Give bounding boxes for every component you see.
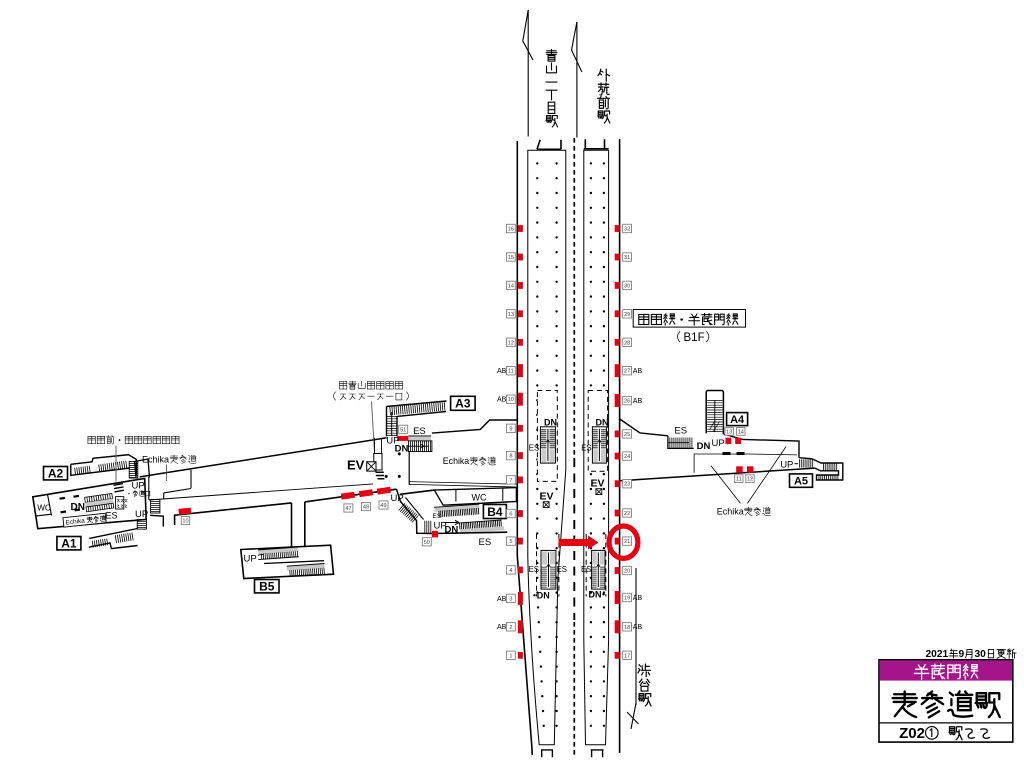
svg-text:14: 14: [738, 429, 744, 435]
svg-text:EV: EV: [591, 477, 605, 489]
svg-text:AB: AB: [633, 595, 643, 602]
svg-text:ES: ES: [557, 565, 567, 574]
svg-text:11: 11: [508, 369, 514, 375]
svg-text:2021: 2021: [926, 649, 949, 660]
svg-text:4: 4: [509, 568, 512, 574]
svg-text:10: 10: [182, 519, 188, 525]
svg-text:29: 29: [624, 312, 630, 318]
svg-text:10: 10: [508, 397, 514, 403]
svg-text:ES: ES: [529, 444, 539, 453]
svg-text:2: 2: [509, 625, 512, 631]
svg-text:UP: UP: [135, 509, 148, 520]
svg-text:AB: AB: [497, 624, 507, 631]
svg-text:WC: WC: [37, 504, 51, 513]
svg-text:19: 19: [624, 596, 630, 602]
svg-text:Echika: Echika: [142, 454, 169, 464]
svg-text:22: 22: [624, 511, 630, 517]
svg-text:UP: UP: [780, 459, 793, 470]
svg-text:EV: EV: [347, 458, 365, 473]
svg-text:DN: DN: [589, 590, 602, 600]
svg-text:5: 5: [509, 539, 512, 545]
svg-text:28: 28: [624, 340, 630, 346]
svg-text:9: 9: [959, 649, 965, 660]
svg-text:A1: A1: [61, 536, 77, 550]
svg-text:13: 13: [726, 429, 732, 435]
svg-text:51: 51: [400, 427, 406, 433]
svg-text:ES: ES: [479, 537, 492, 548]
svg-text:AB: AB: [633, 368, 643, 375]
svg-text:UP: UP: [712, 438, 725, 449]
svg-text:DN: DN: [71, 502, 85, 513]
svg-text:9: 9: [509, 426, 512, 432]
svg-text:A2: A2: [48, 466, 64, 480]
svg-text:49: 49: [380, 503, 386, 509]
svg-text:Z02: Z02: [899, 725, 925, 742]
svg-text:8: 8: [509, 454, 512, 460]
svg-text:32: 32: [624, 227, 630, 233]
svg-text:AB: AB: [497, 397, 507, 404]
svg-text:DN: DN: [596, 418, 609, 428]
svg-text:30: 30: [624, 283, 630, 289]
svg-text:7: 7: [509, 478, 512, 484]
svg-text:18: 18: [624, 625, 630, 631]
svg-text:12: 12: [747, 477, 753, 483]
svg-text:B4: B4: [487, 505, 503, 519]
svg-text:AB: AB: [633, 398, 643, 405]
svg-text:Echika: Echika: [443, 456, 470, 466]
svg-text:26: 26: [624, 399, 630, 405]
svg-text:DN: DN: [537, 591, 550, 601]
svg-text:EV: EV: [540, 490, 554, 502]
svg-text:ES: ES: [581, 444, 591, 453]
svg-text:24: 24: [624, 454, 630, 460]
svg-text:23: 23: [624, 482, 630, 488]
svg-text:ES: ES: [433, 513, 442, 520]
svg-text:27: 27: [624, 369, 630, 375]
svg-text:13: 13: [508, 312, 514, 318]
svg-text:31: 31: [624, 255, 630, 261]
svg-text:A5: A5: [794, 476, 808, 488]
svg-text:12: 12: [508, 340, 514, 346]
svg-text:15: 15: [508, 255, 514, 261]
svg-text:ES: ES: [674, 426, 687, 437]
svg-text:B5: B5: [259, 579, 275, 593]
svg-text:Echika: Echika: [717, 507, 744, 517]
svg-text:25: 25: [624, 432, 630, 438]
svg-text:AB: AB: [497, 368, 507, 375]
svg-text:UP: UP: [244, 554, 257, 565]
svg-text:ES: ES: [106, 511, 118, 521]
svg-text:20: 20: [624, 569, 630, 575]
svg-text:48: 48: [363, 505, 369, 511]
svg-text:ES: ES: [581, 565, 591, 574]
svg-text:6: 6: [509, 512, 512, 518]
svg-text:16: 16: [508, 227, 514, 233]
svg-text:47: 47: [345, 506, 351, 512]
svg-text:DN: DN: [544, 418, 557, 428]
svg-text:11: 11: [736, 477, 742, 483]
svg-text:21: 21: [624, 539, 630, 545]
svg-text:17: 17: [624, 653, 630, 659]
svg-text:50: 50: [424, 540, 430, 546]
svg-text:ES: ES: [529, 565, 539, 574]
svg-text:14: 14: [508, 283, 514, 289]
svg-text:DN: DN: [395, 444, 409, 455]
svg-text:WC: WC: [472, 493, 487, 503]
svg-text:30: 30: [974, 649, 986, 660]
svg-text:3: 3: [509, 596, 512, 602]
svg-text:AB: AB: [633, 624, 643, 631]
svg-text:A4: A4: [730, 414, 745, 426]
svg-text:B1F: B1F: [684, 332, 705, 344]
svg-text:DN: DN: [697, 441, 711, 452]
svg-text:1: 1: [509, 653, 512, 659]
svg-text:A3: A3: [455, 397, 471, 411]
svg-text:AB: AB: [497, 596, 507, 603]
svg-text:UP: UP: [132, 481, 145, 492]
